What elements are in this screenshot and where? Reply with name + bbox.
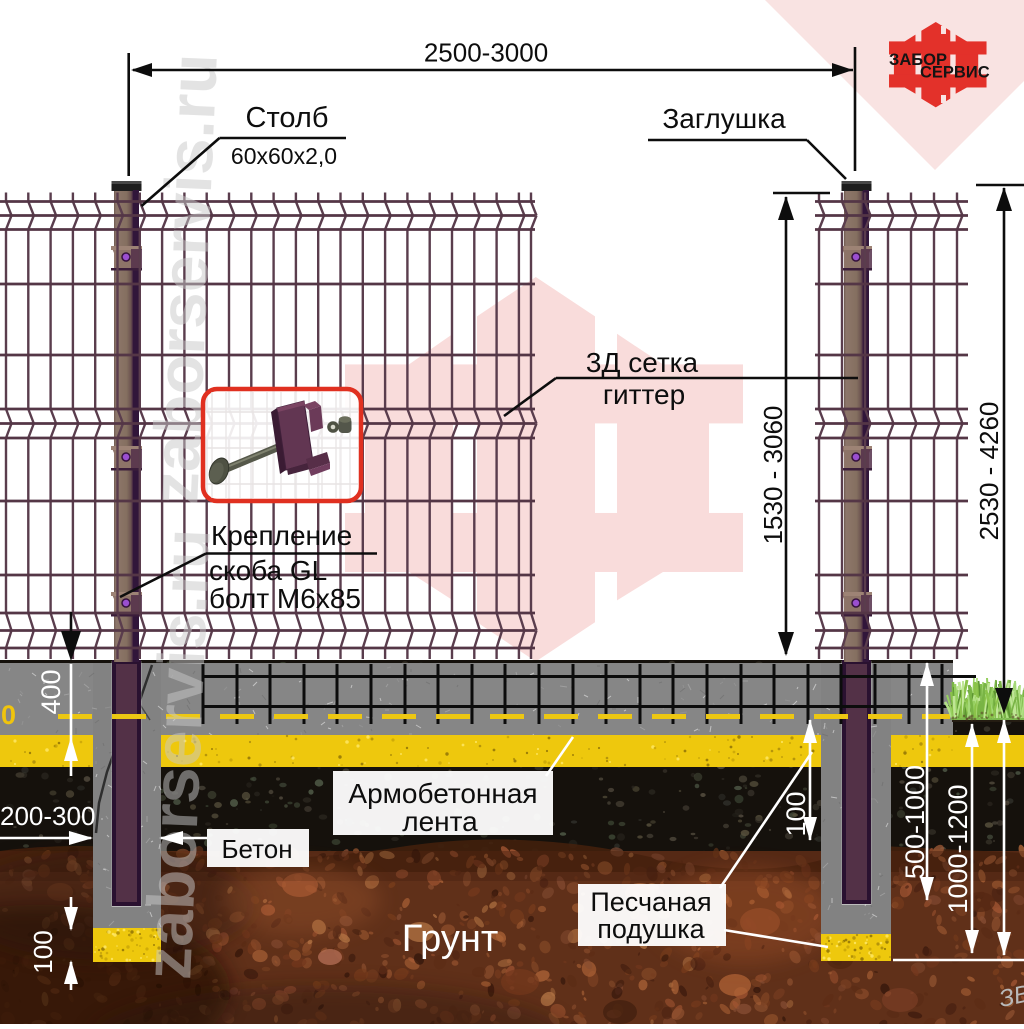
svg-text:Песчаная: Песчаная — [590, 887, 711, 917]
svg-text:ЗВ: ЗВ — [997, 980, 1024, 1013]
svg-text:100: 100 — [781, 791, 811, 836]
svg-text:Заглушка: Заглушка — [662, 103, 786, 134]
svg-text:1530 - 3060: 1530 - 3060 — [758, 406, 788, 545]
svg-text:400: 400 — [36, 669, 66, 714]
svg-text:Крепление: Крепление — [211, 520, 352, 551]
svg-text:болт М6х85: болт М6х85 — [209, 583, 361, 614]
svg-text:2500-3000: 2500-3000 — [424, 38, 548, 68]
svg-text:скоба GL: скоба GL — [209, 555, 327, 586]
svg-text:0: 0 — [1, 700, 16, 730]
svg-text:Армобетонная: Армобетонная — [348, 778, 537, 809]
svg-text:Столб: Столб — [246, 102, 329, 134]
svg-text:1000-1200: 1000-1200 — [943, 784, 973, 913]
svg-text:Бетон: Бетон — [221, 834, 292, 864]
svg-text:СЕРВИС: СЕРВИС — [920, 64, 990, 82]
svg-text:лента: лента — [402, 806, 478, 837]
svg-text:500-1000: 500-1000 — [900, 765, 930, 879]
svg-text:3Д сетка: 3Д сетка — [586, 347, 699, 378]
svg-text:подушка: подушка — [597, 914, 705, 944]
svg-text:200-300: 200-300 — [0, 801, 95, 831]
svg-text:Грунт: Грунт — [402, 918, 499, 960]
svg-text:2530 - 4260: 2530 - 4260 — [974, 402, 1004, 541]
svg-text:гиттер: гиттер — [603, 379, 685, 410]
svg-text:100: 100 — [28, 930, 58, 973]
svg-text:60x60x2,0: 60x60x2,0 — [231, 143, 337, 169]
